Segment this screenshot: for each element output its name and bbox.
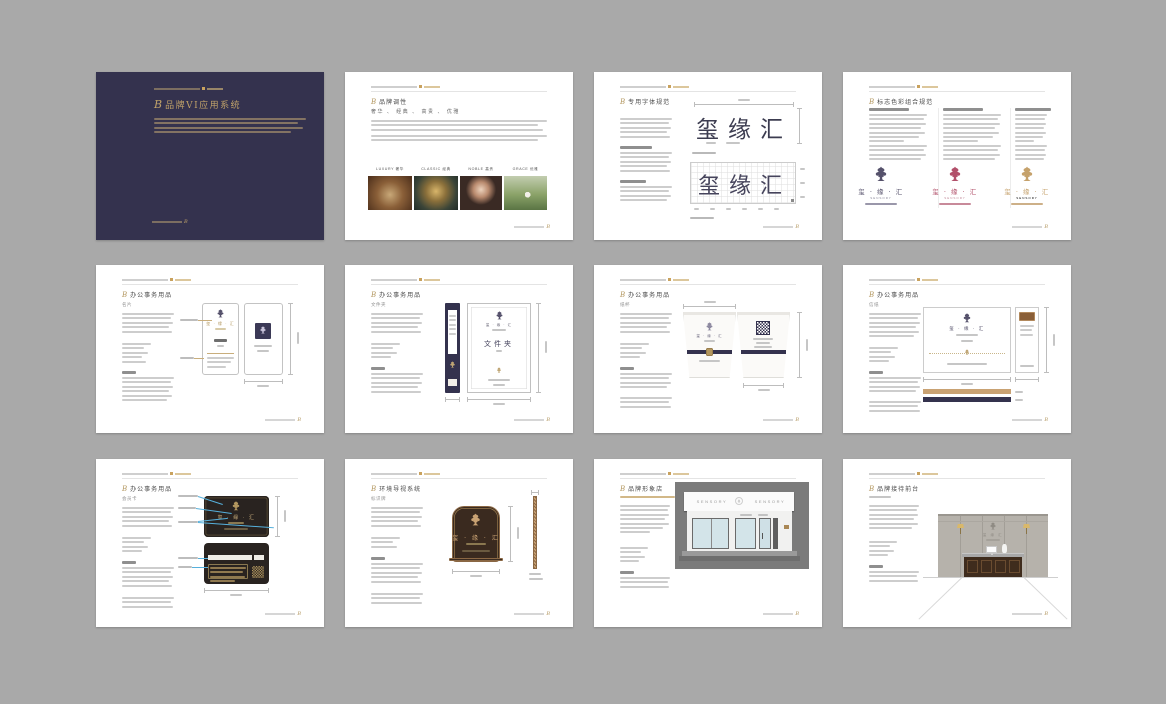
window-mullion — [711, 519, 712, 548]
tick-label — [742, 208, 747, 210]
dimension-line — [244, 381, 283, 382]
sub-heading — [122, 561, 136, 564]
page-footer: B — [265, 612, 301, 616]
sub-heading — [869, 565, 883, 568]
header-rule — [371, 478, 547, 479]
tick-label — [694, 208, 699, 210]
cover-paragraph — [154, 118, 306, 136]
door-handle — [762, 533, 763, 539]
annotation-label — [178, 495, 198, 497]
text-paragraph — [371, 507, 423, 529]
caption-line — [492, 329, 506, 331]
logo-lockup-crimson: 玺 · 缘 · 汇 — [929, 186, 981, 196]
page-title: B标志色彩组合规范 — [869, 97, 933, 106]
plaque-lockup: 玺 · 缘 · 汇 — [452, 533, 500, 542]
page-header — [371, 472, 440, 475]
page-title: B办公事务用品 — [371, 290, 421, 299]
dimension-line — [290, 303, 291, 375]
page-header — [371, 85, 440, 88]
sub-heading — [1015, 108, 1051, 111]
dimension-label — [758, 389, 770, 391]
text-paragraph — [371, 373, 423, 395]
crest-icon — [231, 501, 241, 512]
sub-heading — [620, 146, 652, 149]
leader-line — [198, 558, 208, 559]
text-paragraph — [869, 571, 919, 584]
page-title: B品牌形象店 — [620, 484, 663, 493]
fascia-sign-left: SENSORY — [692, 499, 732, 504]
caption-line — [493, 384, 505, 386]
tick-label — [726, 208, 731, 210]
caption-line — [257, 350, 269, 352]
display-window — [735, 518, 756, 549]
leader-line — [194, 358, 204, 359]
dimension-line — [1015, 379, 1039, 380]
floor-line — [923, 577, 1058, 578]
header-rule — [122, 478, 298, 479]
spec-list — [869, 541, 919, 559]
page-letterhead: B办公事务用品 信纸 玺 · 缘 · 汇 B — [843, 265, 1071, 433]
caption-line — [462, 550, 490, 552]
card-lockup: 玺 · 缘 · 汇 — [202, 321, 239, 327]
page-membership-card: B办公事务用品 会员卡 玺 · 缘 · 汇 — [96, 459, 324, 627]
desk-panel — [1009, 560, 1020, 573]
ornament-icon — [496, 367, 502, 374]
sub-heading — [620, 180, 646, 183]
page-title: B专用字体规范 — [620, 97, 670, 106]
folder-lockup: 玺 · 缘 · 汇 — [467, 323, 531, 328]
gold-subtitle-line — [620, 496, 675, 498]
sub-label-line — [869, 496, 891, 498]
text-paragraph — [371, 563, 423, 585]
caption-line — [466, 543, 486, 545]
tick-label — [800, 196, 805, 198]
grid-marker — [791, 199, 794, 202]
dimension-line — [799, 108, 800, 144]
page-reception: B品牌接待前台 玺 缘 汇 — [843, 459, 1071, 627]
cup-rim — [683, 312, 736, 315]
logo-lockup-gold: 玺 · 缘 · 汇 — [1001, 186, 1053, 196]
header-rule — [122, 284, 298, 285]
gold-dot-icon — [668, 278, 671, 281]
cup-band — [741, 350, 786, 354]
text-paragraph — [869, 313, 921, 339]
caption-line — [753, 338, 773, 340]
page-folder: B办公事务用品 文件夹 玺 · 缘 · 汇 文件夹 B — [345, 265, 573, 433]
spec-list — [122, 537, 174, 555]
cover-footer: B — [152, 220, 188, 224]
dimension-label — [230, 594, 242, 596]
caption-line — [488, 379, 510, 381]
card-name-line — [214, 339, 227, 342]
dimension-line — [743, 385, 784, 386]
crest-icon — [1019, 166, 1035, 184]
card-back — [244, 303, 283, 375]
header-rule — [371, 284, 547, 285]
dimension-line — [923, 379, 1011, 380]
text-paragraph — [122, 507, 174, 529]
text-paragraph — [122, 313, 174, 335]
logo-caption — [939, 203, 971, 205]
spine-footer-block — [448, 379, 457, 386]
dimension-line — [694, 104, 794, 105]
panel-lines — [1020, 325, 1034, 338]
page-header — [620, 472, 689, 475]
header-rule — [869, 91, 1045, 92]
annotation-label — [178, 557, 198, 559]
glass-door — [759, 518, 771, 549]
color-bar-label — [1015, 391, 1023, 393]
dimension-label — [545, 341, 547, 353]
tick-label — [710, 208, 715, 210]
card-gold-rule — [207, 353, 234, 354]
dimension-line — [683, 306, 736, 307]
card-title-line — [217, 345, 224, 347]
logo-lockup-navy: 玺 · 缘 · 汇 — [855, 186, 907, 196]
page-title: B环境导视系统 — [371, 484, 421, 493]
spec-list — [371, 343, 423, 361]
page-footer: B — [1012, 418, 1048, 422]
text-paragraph — [620, 505, 670, 536]
sub-heading — [869, 108, 909, 111]
page-title: B办公事务用品 — [122, 290, 172, 299]
header-rule — [869, 478, 1045, 479]
dimension-label — [738, 99, 750, 101]
text-paragraph — [1015, 114, 1047, 162]
page-title: B办公事务用品 — [869, 290, 919, 299]
script-mark: B — [154, 98, 162, 111]
spec-list — [371, 537, 423, 550]
page-footer: B — [514, 418, 550, 422]
page-footer: B — [514, 612, 550, 616]
color-bar-tan — [923, 389, 1011, 394]
spec-list — [620, 547, 670, 565]
image-caption: CLASSIC 经典 — [414, 167, 458, 172]
logo-english: SENSORY — [941, 196, 969, 200]
crest-icon — [495, 311, 504, 321]
fascia-sign-right: SENSORY — [750, 499, 790, 504]
color-bar-label — [1015, 399, 1023, 401]
caption-line — [740, 514, 752, 516]
gold-dot-icon — [419, 278, 422, 281]
text-paragraph — [943, 114, 1001, 162]
dimension-label — [257, 385, 269, 387]
gold-dot-icon — [917, 472, 920, 475]
annotation-label — [178, 507, 196, 509]
gold-dot-icon — [917, 278, 920, 281]
header-rule — [371, 91, 547, 92]
text-paragraph — [122, 377, 174, 403]
letter-lockup: 玺 · 缘 · 汇 — [923, 326, 1011, 332]
dimension-label — [706, 142, 716, 144]
page-brand-tone: B品牌调性 奢华 、 经典 、 高贵 、 优雅 LUXURY 奢华 CLASSI… — [345, 72, 573, 240]
spec-list — [620, 343, 672, 361]
sub-heading — [371, 367, 385, 370]
footer-line — [947, 363, 987, 365]
page-footer: B — [763, 612, 799, 616]
sub-heading — [943, 108, 983, 111]
desk-panel — [995, 560, 1006, 573]
display-window — [692, 518, 729, 549]
dimension-line — [277, 496, 278, 537]
caption-line — [986, 539, 1000, 541]
text-paragraph — [869, 114, 927, 162]
logo-english: SENSORY — [867, 196, 895, 200]
page-header — [869, 85, 938, 88]
card-english-line — [215, 328, 226, 330]
caption-line — [224, 528, 248, 530]
page-cover: B 品牌VI应用系统 B — [96, 72, 324, 240]
text-paragraph — [371, 135, 547, 144]
caption-line — [758, 514, 768, 516]
sub-heading — [371, 557, 385, 560]
dimension-line — [467, 399, 531, 400]
photo-noble — [460, 176, 502, 210]
spine-label-lines — [449, 315, 456, 337]
page-sign-plaque: B环境导视系统 标识牌 玺 · 缘 · 汇 B — [345, 459, 573, 627]
gold-dot-icon — [917, 85, 920, 88]
dimension-line — [1046, 307, 1047, 373]
sconce-stem — [960, 528, 961, 534]
page-footer: B — [763, 225, 799, 229]
item-label: 文件夹 — [371, 302, 386, 308]
wall-plaque — [784, 525, 789, 529]
dimension-label — [517, 527, 519, 539]
text-paragraph — [620, 152, 672, 174]
annotation-label — [178, 521, 198, 523]
dimension-label — [704, 301, 716, 303]
plaque-side-view — [533, 496, 537, 569]
crest-icon — [737, 499, 741, 504]
page-footer: B — [1012, 612, 1048, 616]
page-business-card: B办公事务用品 名片 玺 · 缘 · 汇 B — [96, 265, 324, 433]
dimension-label — [961, 383, 973, 385]
panel-logo-block — [1019, 312, 1035, 321]
crest-icon — [216, 309, 225, 319]
page-footer: B — [265, 418, 301, 422]
sconce-stem — [1026, 528, 1027, 534]
tick-label — [800, 182, 805, 184]
page-storefront: B品牌形象店 SENSORY SENSORY B — [594, 459, 822, 627]
text-paragraph — [869, 401, 921, 414]
spec-list — [869, 347, 921, 365]
page-paper-cup: B办公事务用品 纸杯 玺 · 缘 · 汇 B — [594, 265, 822, 433]
band-emblem — [706, 348, 713, 356]
text-paragraph — [620, 313, 672, 335]
cover-title-text: 品牌VI应用系统 — [165, 98, 241, 111]
gold-dot-icon — [668, 472, 671, 475]
photo-luxury — [368, 176, 412, 210]
cup-lockup: 玺 · 缘 · 汇 — [683, 334, 736, 339]
page-title: B品牌接待前台 — [869, 484, 919, 493]
caption-line — [961, 340, 973, 342]
sub-heading — [869, 371, 883, 374]
caption-line — [496, 350, 502, 352]
ornament-icon — [964, 349, 970, 356]
dimension-line — [204, 590, 269, 591]
photo-classic — [414, 176, 458, 210]
color-bar-navy — [923, 397, 1011, 402]
text-paragraph — [620, 186, 672, 204]
logo-caption — [1011, 203, 1043, 205]
header-rule — [620, 91, 796, 92]
crest-icon — [989, 522, 997, 531]
page-header — [869, 472, 938, 475]
tick-label — [774, 208, 779, 210]
tone-keywords: 奢华 、 经典 、 高贵 、 优雅 — [371, 108, 460, 115]
cover-title: B 品牌VI应用系统 — [154, 98, 241, 111]
floor-perspective-line — [918, 577, 962, 619]
page-header — [620, 278, 689, 281]
text-paragraph — [620, 397, 672, 410]
item-label: 标识牌 — [371, 496, 386, 502]
gold-dot-icon — [170, 472, 173, 475]
text-paragraph — [122, 567, 174, 589]
dimension-label — [284, 510, 286, 522]
card-address-lines — [207, 357, 234, 370]
caption-line — [754, 346, 772, 348]
cvv-block — [254, 555, 264, 560]
leader-line — [198, 320, 212, 321]
crest-icon — [947, 166, 963, 184]
spec-list — [122, 343, 174, 365]
dimension-label — [529, 578, 543, 580]
terms-lines — [210, 567, 246, 585]
text-paragraph — [371, 313, 423, 335]
monitor-stand — [991, 553, 993, 555]
item-label: 信纸 — [869, 302, 879, 308]
wordmark-specimen: 玺缘汇 — [696, 110, 792, 144]
text-paragraph — [620, 373, 672, 391]
image-caption: GRACE 优雅 — [504, 167, 547, 172]
dimension-label — [470, 575, 482, 577]
item-label: 会员卡 — [122, 496, 137, 502]
tick-label — [758, 208, 763, 210]
side-panel — [773, 518, 778, 549]
text-paragraph — [371, 593, 423, 606]
vase — [1002, 544, 1007, 553]
folder-cover-text: 文件夹 — [467, 339, 531, 349]
leader-line — [192, 567, 208, 568]
tick-label — [800, 168, 805, 170]
crest-icon — [873, 166, 889, 184]
image-caption: NOBLE 高贵 — [460, 167, 502, 172]
vi-manual-grid: B 品牌VI应用系统 B B品牌调性 奢华 、 经典 、 高贵 、 优雅 LUX… — [0, 0, 1166, 704]
step-lower — [679, 556, 800, 561]
signature-strip — [208, 555, 252, 560]
desk-body — [964, 557, 1022, 577]
cup-rim — [737, 312, 790, 315]
plaque-base — [449, 558, 503, 561]
dimension-line — [799, 312, 800, 378]
page-footer: B — [1012, 225, 1048, 229]
caption-line — [956, 334, 978, 336]
text-paragraph — [122, 597, 174, 610]
caption-line — [704, 340, 715, 342]
wordmark-specimen-grid: 玺缘汇 — [698, 168, 791, 200]
header-rule — [869, 284, 1045, 285]
caption-line — [699, 360, 720, 362]
item-label: 名片 — [122, 302, 132, 308]
page-title: B品牌调性 — [371, 97, 407, 106]
text-paragraph — [620, 577, 670, 590]
text-paragraph — [869, 377, 921, 395]
dimension-label — [726, 142, 740, 144]
dimension-line — [531, 492, 539, 493]
desk-panel — [981, 560, 992, 573]
annotation-label — [180, 319, 198, 321]
text-paragraph — [371, 120, 547, 133]
dimension-line — [445, 399, 460, 400]
item-label: 纸杯 — [620, 302, 630, 308]
logo-caption — [865, 203, 897, 205]
dimension-label — [529, 573, 541, 575]
crest-icon — [259, 326, 267, 335]
photo-grace — [504, 176, 547, 210]
crest-icon — [449, 361, 456, 369]
crest-icon — [705, 322, 714, 332]
gold-dot-icon — [170, 278, 173, 281]
logo-english: SENSORY — [1013, 196, 1041, 200]
page-header — [122, 278, 191, 281]
page-header — [620, 85, 689, 88]
caption-line — [692, 152, 716, 154]
page-title: B办公事务用品 — [620, 290, 670, 299]
dimension-label — [297, 332, 299, 344]
caption-line — [1020, 365, 1034, 367]
qr-code — [756, 321, 770, 335]
crest-icon — [469, 513, 482, 528]
header-rule — [620, 478, 796, 479]
page-title: B办公事务用品 — [122, 484, 172, 493]
cover-header — [154, 87, 223, 90]
dimension-line — [452, 571, 500, 572]
page-header — [371, 278, 440, 281]
gold-dot-icon — [419, 85, 422, 88]
dimension-label — [1053, 334, 1055, 346]
page-typeface: B专用字体规范 玺缘汇 玺缘汇 B — [594, 72, 822, 240]
image-caption: LUXURY 奢华 — [368, 167, 412, 172]
gold-dot-icon — [419, 472, 422, 475]
page-logo-colorways: B标志色彩组合规范 玺 · 缘 · 汇 SENSORY 玺 · 缘 · 汇 SE… — [843, 72, 1071, 240]
sub-heading — [620, 571, 634, 574]
gold-dot-icon — [202, 87, 205, 90]
gold-dot-icon — [668, 85, 671, 88]
page-footer: B — [763, 418, 799, 422]
header-rule — [620, 284, 796, 285]
dimension-label — [806, 339, 808, 351]
text-paragraph — [620, 118, 672, 140]
wall-logo-text: 玺 缘 汇 — [975, 533, 1011, 538]
text-paragraph — [869, 505, 919, 531]
crest-icon — [962, 313, 972, 324]
sub-heading — [122, 371, 136, 374]
desk-panel — [967, 560, 978, 573]
dimension-line — [510, 506, 511, 562]
caption-line — [690, 217, 714, 219]
page-header — [869, 278, 938, 281]
page-footer: B — [514, 225, 550, 229]
qr-code — [252, 566, 264, 578]
dimension-line — [538, 303, 539, 393]
caption-line — [254, 345, 272, 347]
sub-heading — [620, 367, 634, 370]
annotation-label — [180, 357, 194, 359]
annotation-label — [178, 566, 192, 568]
monitor — [986, 546, 997, 553]
dimension-label — [493, 403, 505, 405]
caption-line — [756, 342, 770, 344]
